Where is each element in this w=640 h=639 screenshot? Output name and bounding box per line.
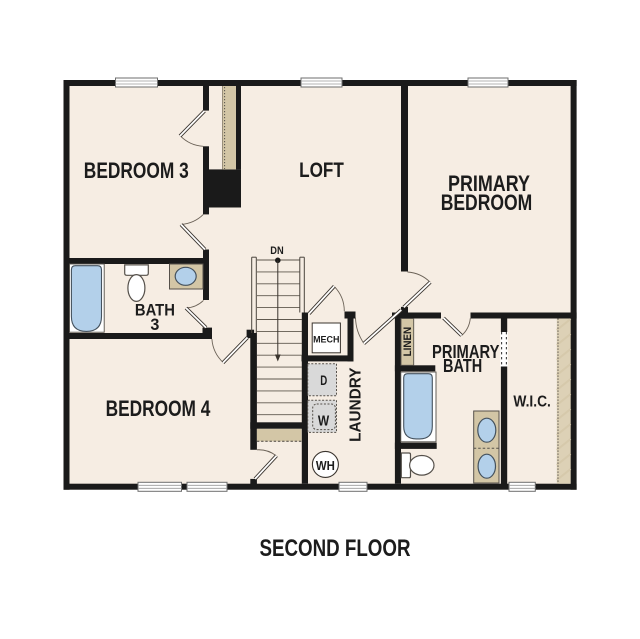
svg-text:D: D <box>320 373 327 389</box>
svg-text:BEDROOM: BEDROOM <box>441 190 533 215</box>
svg-text:LINEN: LINEN <box>402 327 414 357</box>
svg-text:W.I.C.: W.I.C. <box>513 393 551 410</box>
svg-text:WH: WH <box>316 458 335 473</box>
svg-text:3: 3 <box>150 315 159 334</box>
svg-text:LOFT: LOFT <box>299 158 344 182</box>
svg-text:SECOND FLOOR: SECOND FLOOR <box>260 536 411 562</box>
svg-text:BEDROOM 4: BEDROOM 4 <box>106 396 211 421</box>
svg-text:BATH: BATH <box>443 356 482 376</box>
svg-text:LAUNDRY: LAUNDRY <box>348 367 365 442</box>
svg-text:W: W <box>318 413 329 429</box>
svg-text:MECH: MECH <box>313 334 339 344</box>
svg-text:BEDROOM 3: BEDROOM 3 <box>84 158 189 183</box>
svg-text:DN: DN <box>270 245 284 257</box>
